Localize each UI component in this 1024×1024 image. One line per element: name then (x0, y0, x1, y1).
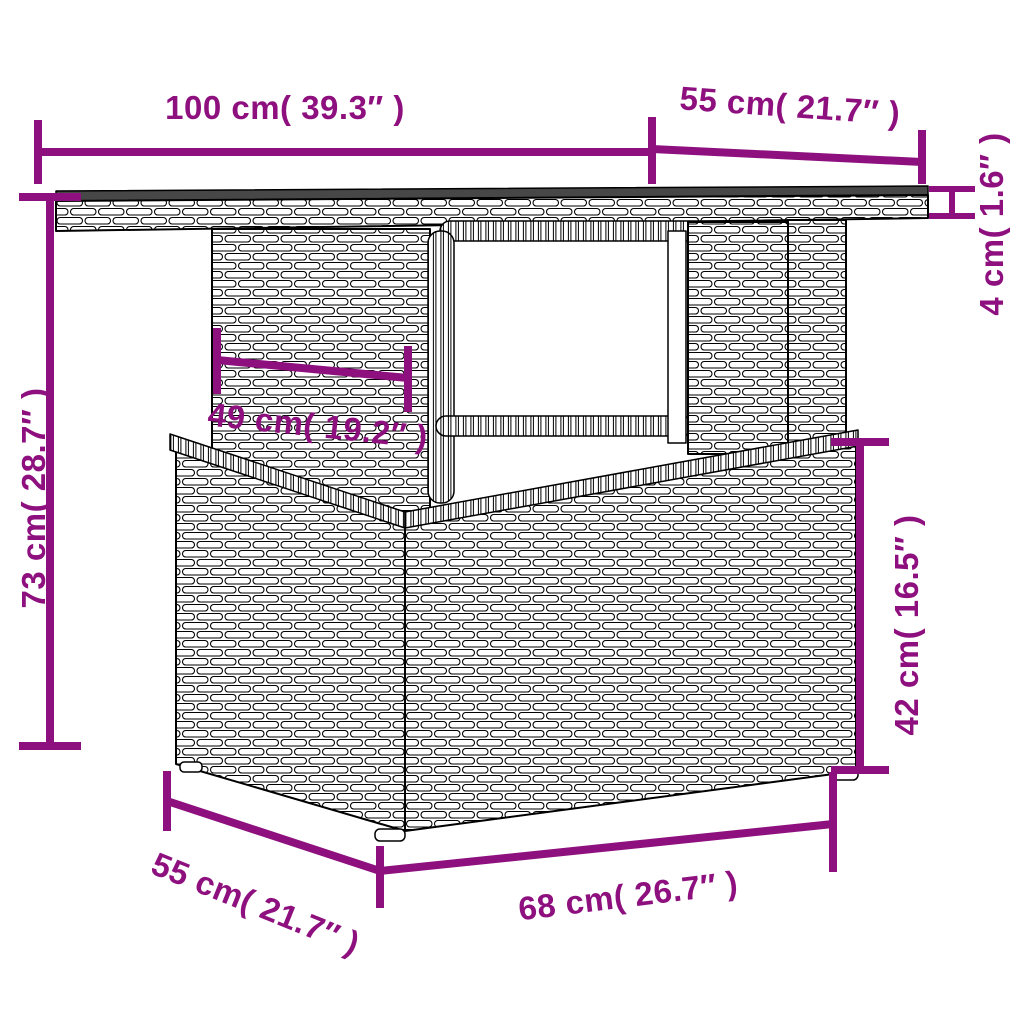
pedestal-column-corner (428, 231, 454, 503)
base-rear-rim (436, 416, 692, 436)
base-box-right-face (405, 438, 856, 831)
dim-label-base-depth: 55 cm( 21.7″ ) (146, 845, 365, 962)
table-line-art (56, 186, 928, 841)
table-foot-left (180, 762, 202, 772)
dim-line-tabletop-depth (652, 149, 922, 162)
dim-line-tabletop-thickness (929, 189, 975, 216)
dim-label-base-width: 68 cm( 26.7″ ) (516, 864, 740, 928)
dim-label-base-height: 42 cm( 16.5″ ) (888, 515, 925, 736)
dim-label-overall-height: 73 cm( 28.7″ ) (15, 388, 52, 609)
lift-slat (668, 231, 686, 443)
diagram-canvas: 100 cm( 39.3″ ) 55 cm( 21.7″ ) 4 cm( 1.6… (0, 0, 1024, 1024)
table-foot-front (375, 829, 405, 841)
dim-label-tabletop-depth: 55 cm( 21.7″ ) (679, 79, 902, 131)
product-dimension-diagram: 100 cm( 39.3″ ) 55 cm( 21.7″ ) 4 cm( 1.6… (0, 0, 1024, 1024)
dim-label-tabletop-width: 100 cm( 39.3″ ) (165, 89, 405, 126)
dim-label-tabletop-thickness: 4 cm( 1.6″ ) (973, 132, 1010, 315)
dim-line-base-width (380, 824, 833, 871)
side-column-front (688, 222, 788, 454)
side-column-side (788, 220, 846, 456)
